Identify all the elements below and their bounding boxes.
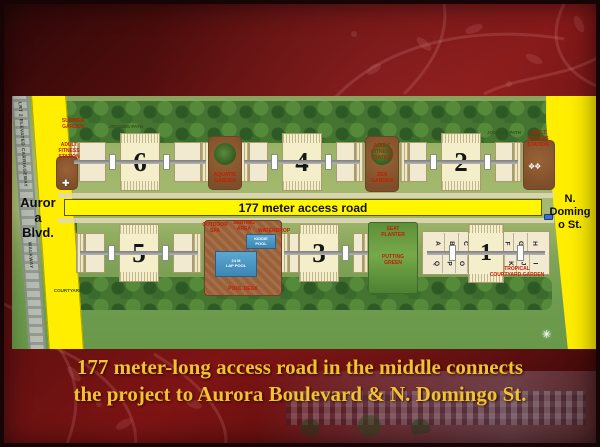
building-spine — [427, 251, 545, 255]
walkway-label: WALKWAY — [27, 242, 34, 269]
unit-letter: J — [519, 261, 526, 265]
lift-core — [342, 245, 349, 261]
building-6: 6 — [70, 140, 210, 184]
adult-fitness-left-label: ADULT FITNESS STATION — [52, 142, 86, 160]
tropical-garden-label: TROPICAL COURTYARD GARDEN — [482, 266, 552, 278]
site-plan-map: LRT 2 ELEVATED CARRIAGEWAY WALKWAY 6 — [12, 96, 596, 349]
pool-deck-label: POOL DECK — [208, 286, 278, 292]
adult-fitness-right-label: ADULT FITNESS STATION — [520, 130, 556, 148]
building-4: 4 — [240, 140, 364, 184]
lift-core — [484, 154, 491, 170]
adult-fitness-mid-label: ADULT FITNESS STATION — [365, 143, 399, 161]
building-spine — [404, 160, 518, 164]
waterdrop-label: WATERDROP — [258, 228, 288, 234]
lap-pool: 24 M LAP POOL — [215, 251, 257, 277]
lift-core — [449, 245, 456, 261]
unit-letter: F — [503, 241, 510, 245]
aurora-blvd-label: Auror a Blvd. — [12, 196, 68, 241]
building-3: 3 — [280, 231, 372, 275]
building-5: 5 — [76, 231, 202, 275]
courtyard-label: COURTYARD — [46, 288, 90, 293]
walkway-strip-lower — [58, 218, 554, 223]
caption-line-1: 177 meter-long access road in the middle… — [4, 354, 596, 381]
lift-core — [325, 154, 332, 170]
unit-letter: O — [458, 260, 465, 265]
lift-core — [109, 154, 116, 170]
lift-core — [162, 245, 169, 261]
walkway-strip-upper — [58, 193, 554, 198]
lap-pool-label: 24 M LAP POOL — [226, 259, 246, 268]
seating-area-label: SEATING AREA — [230, 220, 258, 232]
starburst-icon: ✳ — [542, 328, 551, 341]
unit-cell: O — [455, 253, 467, 273]
unit-letter: A — [434, 241, 441, 246]
building-spine — [284, 251, 368, 255]
caption-line-2: the project to Aurora Boulevard & N. Dom… — [4, 381, 596, 408]
kiddie-pool-label: KIDDIE POOL — [254, 237, 268, 246]
unit-letter: K — [507, 261, 514, 266]
aquatic-garden-label: AQUATIC GARDEN — [208, 172, 242, 184]
seat-planter-label: SEAT PLANTER — [374, 226, 412, 238]
n-domingo-label: N. Doming o St. — [544, 193, 596, 233]
zen-garden-label: ZEN GARDEN — [365, 172, 399, 184]
kiddie-pool: KIDDIE POOL — [246, 234, 276, 249]
lift-core — [108, 245, 115, 261]
access-road-banner: 177 meter access road — [64, 199, 542, 216]
outdoor-spa-label: OUTDOOR SPA — [202, 222, 228, 234]
lift-core — [430, 154, 437, 170]
fitness-cross-icon: ✚ — [62, 178, 70, 189]
building-2: 2 — [400, 140, 522, 184]
unit-cell: H — [527, 233, 541, 253]
unit-letter: I — [532, 262, 539, 264]
unit-cell: A — [431, 233, 444, 253]
lift-core — [517, 245, 524, 261]
putting-green-label: PUTTING GREEN — [374, 254, 412, 266]
presentation-slide: LRT 2 ELEVATED CARRIAGEWAY WALKWAY 6 — [0, 0, 600, 447]
tree-icon — [214, 143, 236, 165]
slide-caption: 177 meter-long access road in the middle… — [4, 354, 596, 409]
summer-garden-label: SUMMER GARDEN — [56, 118, 90, 130]
building-spine — [244, 160, 360, 164]
lrt2-label: LRT 2 ELEVATED CARRIAGEWAY — [18, 102, 29, 187]
garden-diamonds-icon: ❖❖ — [528, 162, 540, 171]
photo-tree-silhouettes — [276, 415, 446, 437]
jogging-path-left-label: JOGGING PATH — [96, 124, 156, 129]
unit-letter: Q — [433, 260, 440, 265]
building-spine — [80, 251, 198, 255]
access-road-label: 177 meter access road — [239, 201, 368, 215]
building-spine — [74, 160, 206, 164]
unit-letter: P — [445, 261, 452, 265]
lift-core — [163, 154, 170, 170]
lift-core — [271, 154, 278, 170]
unit-letter: H — [531, 241, 538, 246]
unit-cell: Q — [431, 253, 442, 273]
